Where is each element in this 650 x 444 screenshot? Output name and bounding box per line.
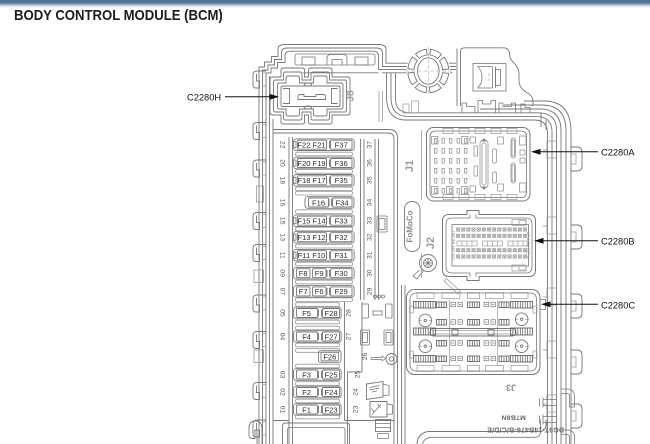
svg-text:F1: F1 xyxy=(302,405,311,414)
svg-text:F25: F25 xyxy=(324,370,337,379)
svg-text:09: 09 xyxy=(278,269,285,277)
svg-text:F24: F24 xyxy=(324,388,337,397)
svg-text:J3: J3 xyxy=(506,383,516,393)
svg-text:01: 01 xyxy=(278,406,285,414)
svg-text:F9: F9 xyxy=(315,269,324,278)
svg-text:F2: F2 xyxy=(302,388,311,397)
svg-text:F7: F7 xyxy=(299,287,308,296)
svg-text:F31: F31 xyxy=(335,251,348,260)
svg-text:28: 28 xyxy=(346,309,353,317)
svg-text:F27: F27 xyxy=(324,332,337,341)
svg-text:C2280A: C2280A xyxy=(601,148,635,158)
svg-text:29: 29 xyxy=(367,287,374,295)
svg-text:F28: F28 xyxy=(324,309,337,318)
svg-text:02: 02 xyxy=(278,388,285,396)
svg-text:34: 34 xyxy=(367,199,374,207)
svg-text:F15 F14: F15 F14 xyxy=(297,217,325,226)
svg-text:11: 11 xyxy=(278,252,285,259)
svg-text:VC4 RL RE A: VC4 RL RE A xyxy=(526,231,531,258)
svg-text:26: 26 xyxy=(362,353,369,361)
svg-text:F8: F8 xyxy=(299,269,308,278)
svg-text:F22 F21: F22 F21 xyxy=(297,141,325,150)
svg-text:07: 07 xyxy=(278,288,285,296)
svg-text:F11 F10: F11 F10 xyxy=(298,251,326,260)
svg-text:F13 F12: F13 F12 xyxy=(297,233,325,242)
svg-text:F20 F19: F20 F19 xyxy=(297,159,325,168)
svg-text:25: 25 xyxy=(355,371,362,379)
svg-text:F32: F32 xyxy=(335,233,348,242)
svg-text:F4: F4 xyxy=(302,332,311,341)
svg-text:FoMoCo: FoMoCo xyxy=(406,210,415,242)
svg-text:J8: J8 xyxy=(346,90,357,102)
svg-text:18: 18 xyxy=(278,177,285,185)
svg-text:F34: F34 xyxy=(335,198,348,207)
svg-text:04: 04 xyxy=(278,333,285,341)
svg-text:36: 36 xyxy=(367,159,374,167)
svg-text:F6: F6 xyxy=(315,287,324,296)
svg-text:DX VR RE RD: DX VR RE RD xyxy=(451,230,456,260)
svg-text:F35: F35 xyxy=(335,176,348,185)
svg-text:37: 37 xyxy=(367,141,374,149)
svg-text:F3: F3 xyxy=(302,370,311,379)
svg-text:F23: F23 xyxy=(324,405,337,414)
svg-text:20: 20 xyxy=(278,159,285,167)
svg-text:F33: F33 xyxy=(335,217,348,226)
svg-text:J1: J1 xyxy=(404,160,416,172)
svg-text:C2280H: C2280H xyxy=(187,93,221,103)
svg-text:24: 24 xyxy=(353,388,360,396)
svg-text:15: 15 xyxy=(278,217,285,225)
svg-text:13: 13 xyxy=(278,233,285,241)
svg-text:32: 32 xyxy=(367,233,374,241)
svg-text:16: 16 xyxy=(278,199,285,207)
svg-text:C2280B: C2280B xyxy=(601,237,635,247)
svg-text:22: 22 xyxy=(278,141,285,149)
svg-text:M7B8N: M7B8N xyxy=(501,414,526,421)
svg-text:J2: J2 xyxy=(425,237,437,249)
svg-text:DG9T-14B476-B/C/D/E: DG9T-14B476-B/C/D/E xyxy=(487,426,564,433)
svg-text:C2280C: C2280C xyxy=(601,301,635,311)
svg-text:F5: F5 xyxy=(302,309,311,318)
svg-text:F30: F30 xyxy=(335,269,348,278)
svg-text:23: 23 xyxy=(353,406,360,414)
svg-text:30: 30 xyxy=(367,269,374,277)
svg-text:27: 27 xyxy=(346,333,353,341)
svg-text:F36: F36 xyxy=(335,159,348,168)
svg-text:F16: F16 xyxy=(312,198,325,207)
svg-text:F18 F17: F18 F17 xyxy=(297,176,325,185)
svg-text:03: 03 xyxy=(278,371,285,379)
svg-text:33: 33 xyxy=(367,217,374,225)
svg-text:31: 31 xyxy=(367,251,374,259)
svg-text:F26: F26 xyxy=(323,352,336,361)
svg-text:F29: F29 xyxy=(335,287,348,296)
svg-text:05: 05 xyxy=(278,309,285,317)
svg-text:35: 35 xyxy=(367,176,374,184)
svg-text:F37: F37 xyxy=(335,141,348,150)
